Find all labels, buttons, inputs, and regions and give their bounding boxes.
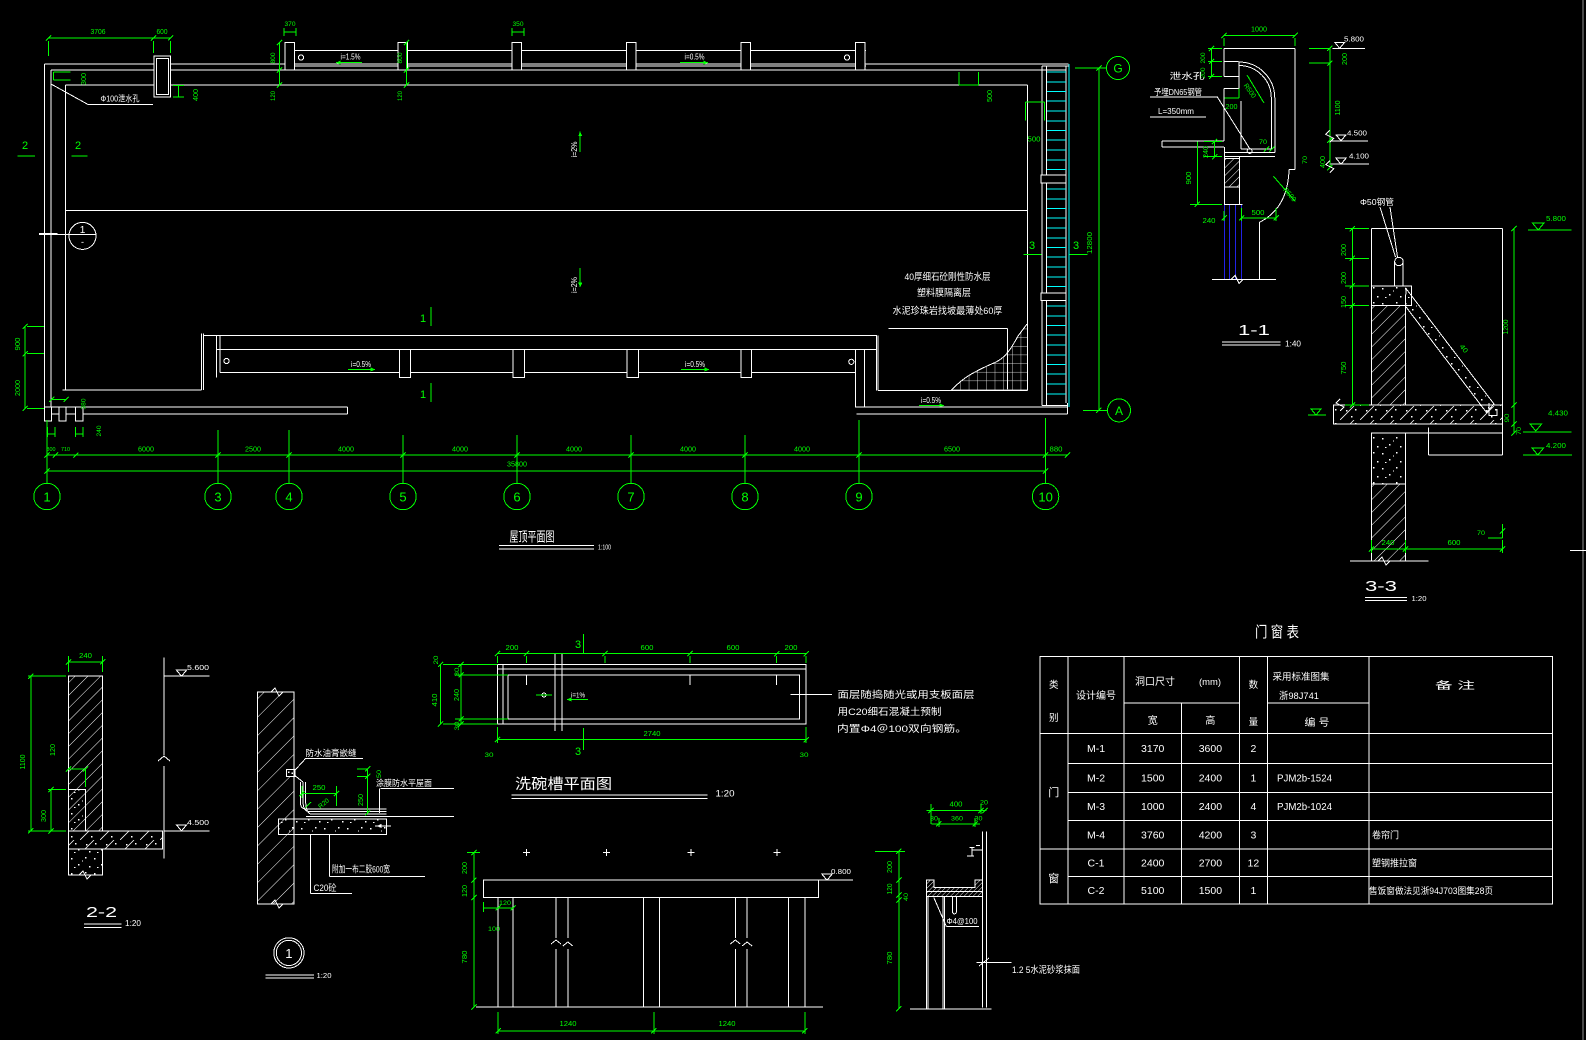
svg-text:4: 4	[1250, 801, 1256, 813]
svg-text:300: 300	[41, 810, 48, 822]
svg-text:防水油膏嵌缝: 防水油膏嵌缝	[306, 748, 357, 758]
svg-text:3600: 3600	[1199, 743, 1223, 755]
svg-text:1: 1	[43, 490, 50, 505]
svg-text:12: 12	[1248, 858, 1260, 870]
svg-text:5.600: 5.600	[187, 663, 209, 672]
svg-text:2: 2	[22, 140, 28, 152]
svg-text:M-3: M-3	[1087, 801, 1105, 813]
svg-text:2400: 2400	[1199, 773, 1223, 785]
svg-text:240: 240	[1382, 540, 1395, 547]
svg-text:1000: 1000	[1251, 25, 1267, 34]
svg-text:600: 600	[727, 645, 740, 652]
svg-text:i=2%: i=2%	[570, 277, 579, 293]
svg-text:5100: 5100	[1141, 885, 1165, 897]
svg-text:120: 120	[887, 883, 894, 894]
svg-text:1100: 1100	[20, 754, 27, 769]
svg-text:1: 1	[1250, 773, 1256, 785]
svg-text:门: 门	[1048, 785, 1059, 799]
svg-text:PJM2b-1024: PJM2b-1024	[1277, 801, 1332, 813]
svg-text:380: 380	[81, 398, 88, 409]
svg-text:备 注: 备 注	[1435, 679, 1475, 692]
svg-text:4.500: 4.500	[1347, 129, 1367, 138]
svg-text:70: 70	[1302, 156, 1309, 164]
svg-text:2: 2	[75, 140, 81, 152]
svg-text:10: 10	[1038, 490, 1052, 505]
svg-text:Φ100泄水孔: Φ100泄水孔	[101, 94, 140, 104]
svg-text:3706: 3706	[91, 27, 106, 36]
svg-text:1:100: 1:100	[598, 545, 611, 552]
svg-text:3: 3	[575, 746, 581, 758]
svg-text:面层随捣随光或用支板面层: 面层随捣随光或用支板面层	[838, 689, 975, 701]
svg-text:750: 750	[1341, 361, 1348, 374]
svg-text:1000: 1000	[1141, 801, 1165, 813]
svg-text:3: 3	[575, 639, 581, 651]
svg-text:1100: 1100	[1335, 100, 1342, 115]
svg-text:240: 240	[1203, 146, 1210, 158]
svg-text:屋顶平面图: 屋顶平面图	[510, 530, 555, 545]
svg-text:70: 70	[1516, 427, 1523, 435]
svg-text:A: A	[1115, 404, 1123, 418]
svg-text:400: 400	[950, 802, 963, 809]
svg-text:30: 30	[485, 752, 494, 759]
svg-text:内置Φ4＠100双向钢筋。: 内置Φ4＠100双向钢筋。	[837, 723, 967, 735]
svg-text:泄水孔: 泄水孔	[1170, 71, 1206, 81]
svg-text:120: 120	[499, 900, 511, 907]
svg-text:3: 3	[1073, 240, 1079, 252]
svg-text:900: 900	[1186, 171, 1193, 184]
svg-text:4.200: 4.200	[1546, 441, 1566, 450]
svg-text:4200: 4200	[1199, 830, 1223, 842]
svg-text:附加一布二胶600宽: 附加一布二胶600宽	[332, 864, 390, 876]
svg-text:780: 780	[462, 950, 469, 963]
svg-text:70: 70	[1259, 139, 1267, 146]
svg-text:4000: 4000	[566, 447, 582, 454]
svg-text:6000: 6000	[138, 447, 154, 454]
svg-text:2740: 2740	[644, 729, 661, 738]
svg-text:35800: 35800	[507, 462, 527, 469]
svg-text:5.800: 5.800	[1344, 35, 1364, 44]
svg-text:300: 300	[81, 73, 88, 85]
svg-text:120: 120	[398, 90, 404, 101]
svg-text:50: 50	[376, 770, 383, 778]
svg-text:400: 400	[1320, 156, 1327, 168]
svg-text:2000: 2000	[15, 380, 22, 396]
svg-text:2-2: 2-2	[86, 904, 117, 921]
svg-text:400: 400	[193, 89, 200, 101]
svg-text:3-3: 3-3	[1365, 578, 1397, 595]
svg-text:浙98J741: 浙98J741	[1279, 690, 1319, 702]
svg-text:200: 200	[1226, 104, 1238, 111]
svg-text:予埋DN65钢管: 予埋DN65钢管	[1154, 87, 1202, 97]
svg-text:i=2%: i=2%	[570, 142, 579, 158]
svg-text:600: 600	[1448, 540, 1461, 547]
svg-text:塑钢推拉窗: 塑钢推拉窗	[1372, 858, 1417, 870]
svg-text:200: 200	[1342, 53, 1349, 65]
svg-text:30: 30	[454, 721, 461, 730]
svg-text:30: 30	[975, 817, 984, 823]
svg-text:500: 500	[1252, 208, 1265, 217]
svg-text:800: 800	[271, 52, 277, 64]
svg-text:编 号: 编 号	[1305, 716, 1330, 729]
svg-text:-: -	[81, 237, 84, 247]
svg-text:20: 20	[433, 655, 440, 664]
svg-text:宽: 宽	[1148, 714, 1158, 727]
svg-text:4000: 4000	[338, 447, 354, 454]
svg-text:别: 别	[1049, 713, 1059, 724]
svg-text:0.800: 0.800	[831, 867, 851, 876]
svg-text:30: 30	[800, 752, 809, 759]
svg-text:i=1.5%: i=1.5%	[341, 53, 361, 62]
svg-text:i=0.5%: i=0.5%	[351, 360, 371, 369]
svg-text:M-2: M-2	[1087, 773, 1105, 785]
svg-text:90: 90	[1504, 413, 1511, 422]
svg-text:5: 5	[399, 490, 406, 505]
svg-text:4000: 4000	[680, 447, 696, 454]
svg-text:2500: 2500	[245, 447, 261, 454]
svg-text:200: 200	[462, 862, 469, 874]
svg-text:500: 500	[987, 90, 994, 102]
svg-text:i=0.5%: i=0.5%	[685, 53, 705, 62]
svg-text:5.800: 5.800	[1546, 214, 1566, 223]
svg-text:1.2 5水泥砂浆抹面: 1.2 5水泥砂浆抹面	[1012, 964, 1080, 976]
svg-text:300: 300	[47, 447, 56, 453]
svg-text:3: 3	[1250, 830, 1256, 842]
svg-text:4: 4	[285, 490, 292, 505]
svg-text:1:20: 1:20	[1412, 594, 1427, 603]
svg-text:类: 类	[1049, 679, 1059, 691]
svg-text:9: 9	[855, 490, 862, 505]
svg-text:200: 200	[785, 645, 798, 652]
svg-text:240: 240	[96, 425, 103, 436]
svg-text:360: 360	[951, 816, 963, 823]
svg-text:1: 1	[420, 389, 426, 401]
svg-text:1500: 1500	[1141, 773, 1165, 785]
svg-text:350: 350	[513, 21, 524, 28]
svg-text:8: 8	[741, 490, 748, 505]
svg-text:250: 250	[358, 794, 365, 806]
svg-text:200: 200	[506, 645, 519, 652]
svg-text:4.100: 4.100	[1349, 152, 1369, 161]
svg-text:(mm): (mm)	[1199, 677, 1221, 688]
svg-text:6: 6	[513, 490, 520, 505]
svg-text:洗碗槽平面图: 洗碗槽平面图	[515, 776, 612, 793]
svg-text:6500: 6500	[944, 447, 960, 454]
svg-text:C-1: C-1	[1088, 858, 1105, 870]
svg-text:高: 高	[1205, 714, 1215, 727]
svg-text:L=350mm: L=350mm	[1158, 106, 1194, 116]
svg-text:G: G	[1113, 62, 1122, 76]
svg-text:2400: 2400	[1199, 801, 1223, 813]
svg-text:1: 1	[80, 225, 86, 236]
svg-text:1:40: 1:40	[1285, 340, 1302, 349]
svg-text:800: 800	[398, 52, 404, 64]
svg-text:1: 1	[1250, 885, 1256, 897]
svg-text:Φ50钢管: Φ50钢管	[1360, 197, 1394, 207]
svg-text:i=0.5%: i=0.5%	[921, 396, 941, 405]
svg-text:1200: 1200	[1503, 319, 1510, 334]
svg-text:600: 600	[157, 27, 168, 36]
svg-text:PJM2b-1524: PJM2b-1524	[1277, 773, 1332, 785]
svg-text:1:20: 1:20	[716, 789, 735, 800]
svg-text:用C20细石混凝土预制: 用C20细石混凝土预制	[838, 706, 942, 718]
svg-text:370: 370	[285, 21, 296, 28]
svg-text:2400: 2400	[1141, 858, 1165, 870]
svg-text:30: 30	[930, 817, 939, 823]
svg-text:i=0.5%: i=0.5%	[685, 360, 705, 369]
svg-text:880: 880	[1050, 447, 1063, 454]
svg-text:水泥珍珠岩找坡最薄处60厚: 水泥珍珠岩找坡最薄处60厚	[893, 305, 1003, 317]
svg-text:120: 120	[50, 744, 57, 756]
svg-text:410: 410	[432, 693, 439, 706]
svg-text:780: 780	[887, 951, 894, 964]
svg-text:7: 7	[627, 490, 634, 505]
svg-text:200: 200	[887, 861, 894, 873]
svg-text:2700: 2700	[1199, 858, 1223, 870]
svg-text:3760: 3760	[1141, 830, 1165, 842]
svg-text:1240: 1240	[560, 1019, 577, 1028]
svg-text:数: 数	[1249, 679, 1259, 691]
svg-text:C20砼: C20砼	[314, 882, 337, 893]
svg-text:200: 200	[1341, 244, 1348, 256]
svg-text:Φ4@100: Φ4@100	[947, 916, 978, 926]
svg-text:100: 100	[488, 926, 500, 933]
svg-text:240: 240	[454, 689, 461, 701]
svg-text:150: 150	[1341, 296, 1348, 308]
svg-text:4000: 4000	[794, 447, 810, 454]
svg-text:M-1: M-1	[1087, 743, 1105, 755]
svg-text:1:20: 1:20	[125, 919, 142, 928]
svg-text:4.500: 4.500	[187, 818, 209, 827]
svg-text:1:20: 1:20	[317, 971, 332, 980]
svg-text:40厚细石砼刚性防水层: 40厚细石砼刚性防水层	[905, 271, 991, 283]
svg-text:40: 40	[904, 892, 910, 901]
svg-text:12800: 12800	[1085, 232, 1094, 254]
svg-text:1: 1	[420, 313, 426, 325]
svg-text:塑料膜隔离层: 塑料膜隔离层	[917, 287, 971, 299]
svg-text:卷帘门: 卷帘门	[1372, 830, 1399, 842]
svg-text:4000: 4000	[452, 447, 468, 454]
svg-text:600: 600	[641, 645, 654, 652]
svg-text:120: 120	[271, 90, 277, 101]
svg-text:3170: 3170	[1141, 743, 1165, 755]
svg-text:门 窗 表: 门 窗 表	[1255, 623, 1299, 641]
svg-text:洞口尺寸: 洞口尺寸	[1135, 675, 1175, 688]
svg-text:1240: 1240	[719, 1019, 736, 1028]
svg-text:售饭窗做法见浙94J703图集28页: 售饭窗做法见浙94J703图集28页	[1369, 885, 1493, 896]
svg-text:120: 120	[462, 885, 469, 897]
svg-text:量: 量	[1249, 717, 1259, 728]
svg-text:1: 1	[285, 946, 292, 961]
svg-text:C-2: C-2	[1088, 885, 1105, 897]
svg-text:2: 2	[1250, 743, 1256, 755]
svg-text:240: 240	[79, 653, 92, 660]
svg-text:200: 200	[1341, 272, 1348, 284]
svg-text:240: 240	[1203, 216, 1216, 225]
svg-text:1500: 1500	[1199, 885, 1223, 897]
svg-text:250: 250	[313, 785, 326, 792]
svg-text:500: 500	[1028, 137, 1041, 144]
svg-text:涂膜防水平屋面: 涂膜防水平屋面	[376, 778, 432, 788]
svg-text:710: 710	[61, 447, 70, 453]
svg-text:设计编号: 设计编号	[1076, 689, 1116, 702]
svg-text:M-4: M-4	[1087, 830, 1105, 842]
svg-text:3: 3	[214, 490, 221, 505]
svg-text:900: 900	[15, 337, 22, 350]
svg-text:窗: 窗	[1048, 871, 1059, 885]
svg-text:200: 200	[1200, 52, 1207, 63]
svg-text:采用标准图集: 采用标准图集	[1273, 671, 1330, 683]
svg-text:3: 3	[1029, 240, 1035, 252]
svg-text:1-1: 1-1	[1238, 322, 1270, 339]
svg-text:i=1%: i=1%	[571, 693, 585, 700]
svg-text:70: 70	[1477, 530, 1485, 537]
svg-text:4.430: 4.430	[1548, 409, 1568, 418]
svg-text:20: 20	[980, 801, 989, 807]
